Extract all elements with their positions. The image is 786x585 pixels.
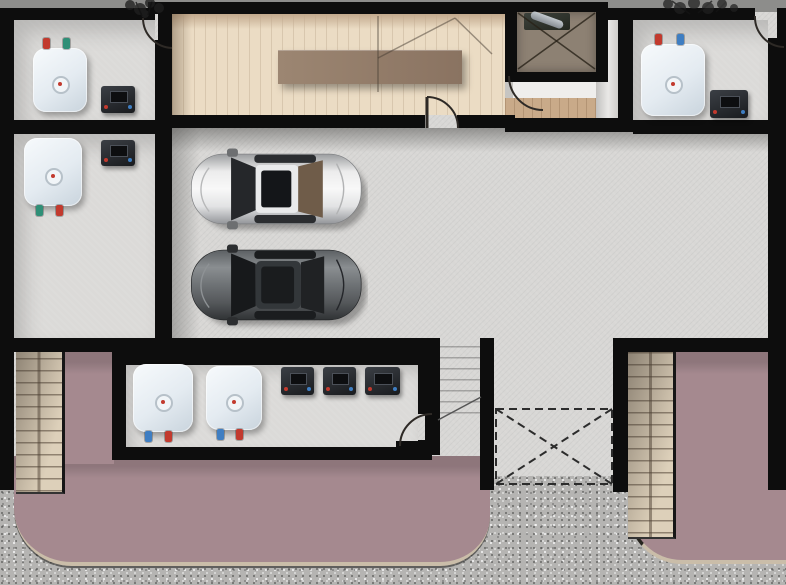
stairs-middle-break-line [438, 397, 481, 420]
workshop-ladder-lines [378, 16, 492, 92]
door-swing-workshop-garage [427, 97, 458, 128]
lift-void-dashed [496, 409, 612, 484]
floor-plan-canvas [0, 0, 786, 585]
door-swing-east-room [755, 16, 784, 47]
plan-linework-overlay [0, 0, 786, 585]
door-swing-lobby [509, 76, 543, 110]
plant-icon [663, 0, 738, 14]
door-swing-technical-room [400, 414, 432, 446]
door-swing-west-room [143, 18, 172, 48]
plant-icon [125, 0, 164, 18]
elevator-x-marks [518, 13, 595, 69]
